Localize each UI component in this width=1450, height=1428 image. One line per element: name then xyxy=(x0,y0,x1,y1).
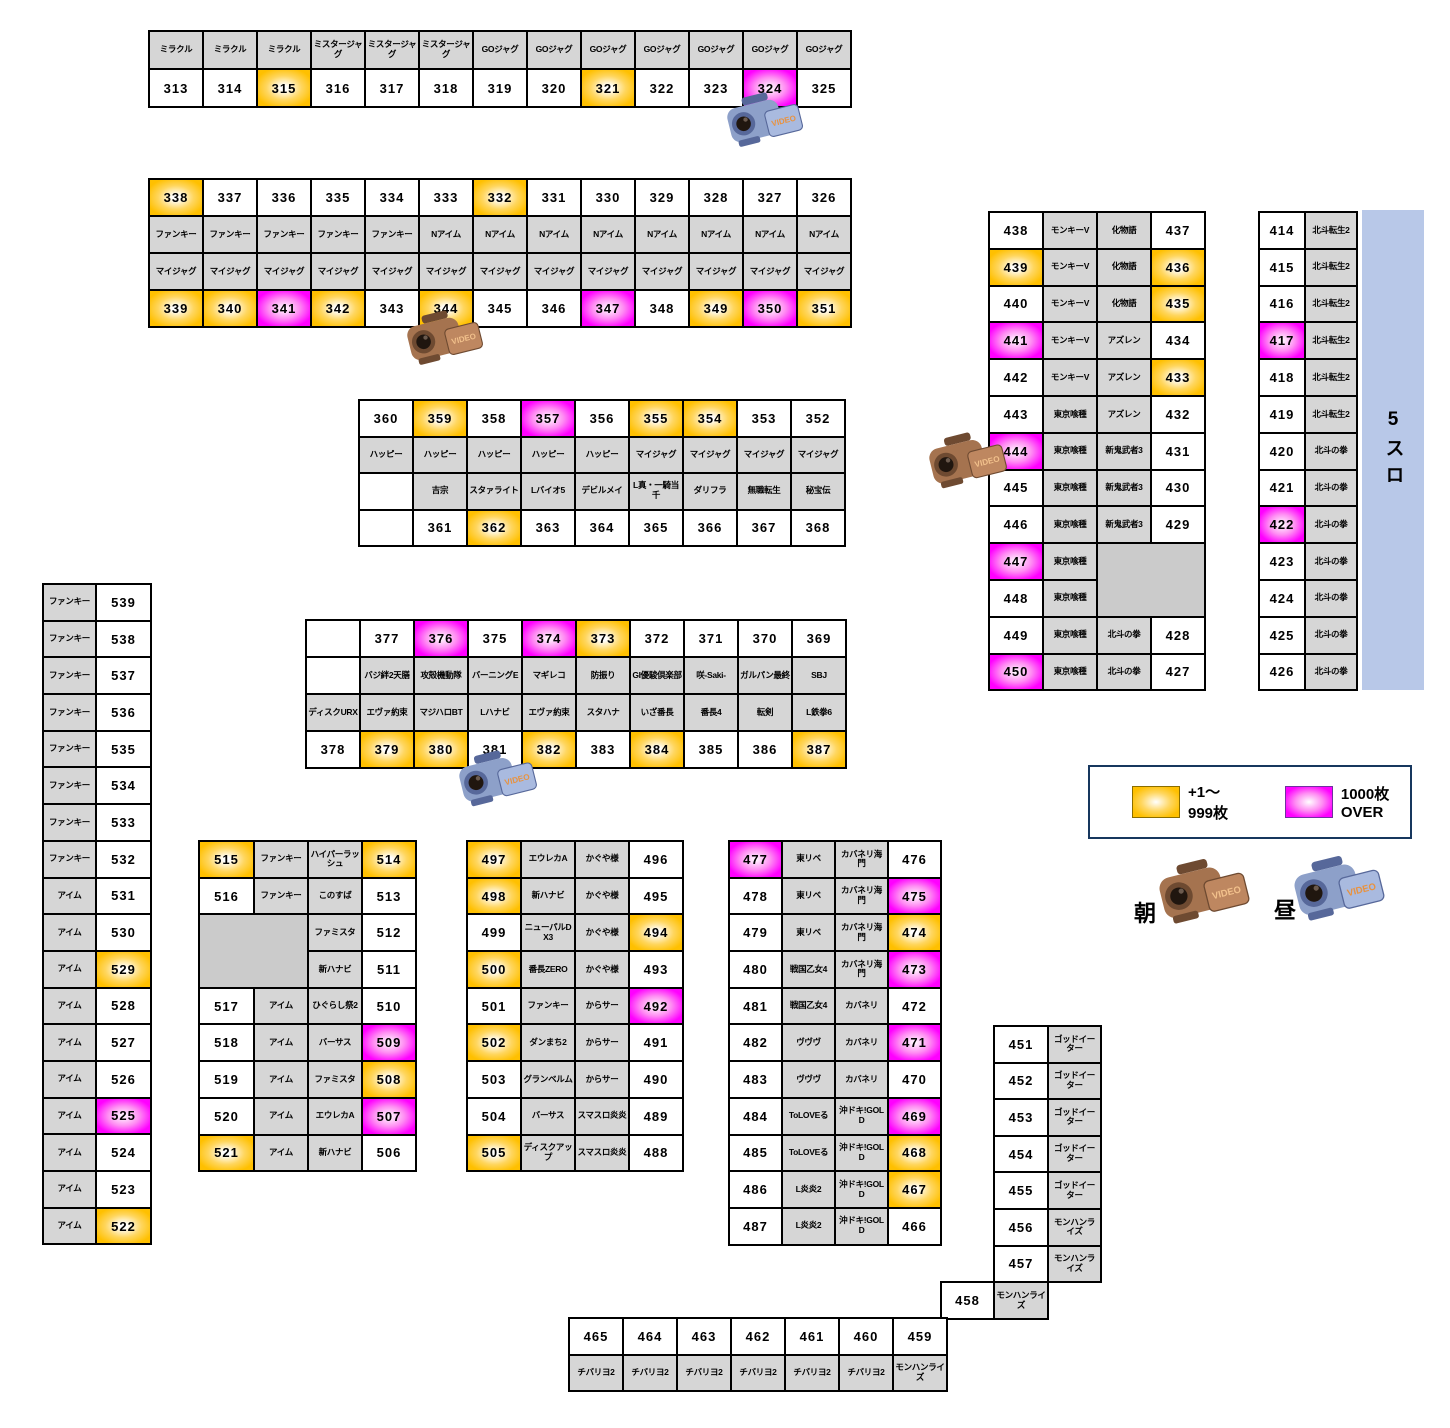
machine-number-cell: 496 xyxy=(629,841,683,878)
machine-name-cell: ファンキー xyxy=(203,216,257,253)
machine-name-cell: カバネリ xyxy=(835,1061,888,1098)
machine-name-cell: マイジャグ xyxy=(683,437,737,474)
machine-number-cell: 353 xyxy=(737,400,791,437)
machine-number-cell-yellow: 373 xyxy=(576,620,630,657)
machine-name-cell: マイジャグ xyxy=(635,253,689,290)
machine-number-cell-yellow: 435 xyxy=(1151,286,1205,323)
machine-name-cell: GOジャグ xyxy=(527,31,581,69)
machine-name-cell: Nアイム xyxy=(689,216,743,253)
machine-name-cell: GOジャグ xyxy=(797,31,851,69)
machine-name-cell: 戦国乙女4 xyxy=(782,988,835,1025)
machine-name-cell: アズレン xyxy=(1097,396,1151,433)
machine-name-cell: モンキーV xyxy=(1043,322,1097,359)
machine-name-cell: このすば xyxy=(308,878,362,915)
machine-number-cell: 356 xyxy=(575,400,629,437)
machine-name-cell: モンキーV xyxy=(1043,359,1097,396)
machine-name-cell: 北斗転生2 xyxy=(1305,212,1357,249)
machine-name-cell: マイジャグ xyxy=(791,437,845,474)
machine-number-cell-yellow: 522 xyxy=(96,1208,151,1245)
machine-number-cell: 480 xyxy=(729,951,782,988)
machine-name-cell: カバネリ海門 xyxy=(835,914,888,951)
machine-number-cell-magenta: 447 xyxy=(989,543,1043,580)
machine-name-cell: カバネリ海門 xyxy=(835,878,888,915)
machine-number-cell: 531 xyxy=(96,878,151,915)
machine-number-cell: 461 xyxy=(785,1318,839,1355)
machine-number-cell: 361 xyxy=(413,510,467,547)
machine-name-cell: ハッピー xyxy=(467,437,521,474)
legend-box: +1～999枚 1000枚OVER xyxy=(1088,765,1412,839)
block-414-426: 414北斗転生2415北斗転生2416北斗転生2417北斗転生2418北斗転生2… xyxy=(1258,211,1358,691)
machine-number-cell-yellow: 340 xyxy=(203,290,257,327)
machine-name-cell: 北斗の拳 xyxy=(1305,470,1357,507)
machine-number-cell: 504 xyxy=(467,1098,521,1135)
machine-name-cell: ToLOVEる xyxy=(782,1098,835,1135)
machine-name-cell: Nアイム xyxy=(419,216,473,253)
machine-number-cell: 429 xyxy=(1151,506,1205,543)
machine-name-cell: L真・一騎当千 xyxy=(629,473,683,510)
machine-name-cell: からサー xyxy=(575,988,629,1025)
machine-name-cell: ファンキー xyxy=(257,216,311,253)
machine-number-cell: 428 xyxy=(1151,617,1205,654)
machine-name-cell: ミスタージャグ xyxy=(419,31,473,69)
machine-number-cell: 317 xyxy=(365,69,419,107)
machine-number-cell-magenta: 417 xyxy=(1259,322,1305,359)
machine-number-cell-yellow: 379 xyxy=(360,731,414,768)
floor-map: 5スロ +1～999枚 1000枚OVER 朝 昼 ミラクルミラクルミラクルミス… xyxy=(0,0,1450,1428)
machine-name-cell: 化物語 xyxy=(1097,286,1151,323)
machine-name-cell: ひぐらし祭2 xyxy=(308,988,362,1025)
machine-number-cell-yellow: 321 xyxy=(581,69,635,107)
machine-number-cell: 426 xyxy=(1259,654,1305,691)
machine-number-cell: 314 xyxy=(203,69,257,107)
machine-name-cell: アイム xyxy=(43,1024,96,1061)
machine-number-cell: 479 xyxy=(729,914,782,951)
machine-number-cell-magenta: 507 xyxy=(362,1098,416,1135)
machine-name-cell: ハッピー xyxy=(413,437,467,474)
machine-number-cell: 470 xyxy=(888,1061,941,1098)
machine-number-cell-magenta: 350 xyxy=(743,290,797,327)
machine-name-cell: ファンキー xyxy=(43,767,96,804)
machine-name-cell: スマスロ炎炎 xyxy=(575,1098,629,1135)
block-326-351: 338337336335334333332331330329328327326フ… xyxy=(148,178,852,328)
machine-number-cell: 532 xyxy=(96,841,151,878)
machine-number-cell: 535 xyxy=(96,731,151,768)
machine-name-cell: かぐや様 xyxy=(575,878,629,915)
machine-name-cell: 北斗の拳 xyxy=(1097,654,1151,691)
machine-number-cell: 518 xyxy=(199,1024,254,1061)
machine-number-cell: 377 xyxy=(360,620,414,657)
machine-name-cell: モンキーV xyxy=(1043,212,1097,249)
machine-number-cell-yellow: 467 xyxy=(888,1171,941,1208)
machine-number-cell: 383 xyxy=(576,731,630,768)
machine-name-cell: カバネリ海門 xyxy=(835,951,888,988)
machine-number-cell: 313 xyxy=(149,69,203,107)
machine-name-cell: ハッピー xyxy=(521,437,575,474)
machine-number-cell: 484 xyxy=(729,1098,782,1135)
machine-name-cell: ミラクル xyxy=(257,31,311,69)
machine-name-cell: アズレン xyxy=(1097,322,1151,359)
machine-name-cell: 沖ドキ!GOLD xyxy=(835,1098,888,1135)
machine-number-cell: 346 xyxy=(527,290,581,327)
machine-number-cell: 476 xyxy=(888,841,941,878)
machine-number-cell-magenta: 441 xyxy=(989,322,1043,359)
machine-number-cell-yellow: 505 xyxy=(467,1135,521,1172)
machine-name-cell: ミスタージャグ xyxy=(311,31,365,69)
machine-number-cell: 520 xyxy=(199,1098,254,1135)
machine-name-cell: エヴァ約束 xyxy=(522,694,576,731)
machine-name-cell: 北斗転生2 xyxy=(1305,396,1357,433)
machine-name-cell: ハッピー xyxy=(359,437,413,474)
machine-number-cell-yellow: 359 xyxy=(413,400,467,437)
machine-name-cell: かぐや様 xyxy=(575,914,629,951)
machine-number-cell: 510 xyxy=(362,988,416,1025)
machine-number-cell: 360 xyxy=(359,400,413,437)
machine-number-cell: 533 xyxy=(96,804,151,841)
machine-number-cell: 501 xyxy=(467,988,521,1025)
machine-name-cell: アイム xyxy=(43,878,96,915)
machine-name-cell: 東リベ xyxy=(782,878,835,915)
machine-name-cell: GOジャグ xyxy=(473,31,527,69)
machine-number-cell-yellow: 338 xyxy=(149,179,203,216)
machine-name-cell: モンハンライズ xyxy=(994,1282,1048,1319)
machine-number-cell: 431 xyxy=(1151,433,1205,470)
machine-number-cell: 367 xyxy=(737,510,791,547)
machine-number-cell: 457 xyxy=(994,1246,1048,1283)
machine-number-cell: 337 xyxy=(203,179,257,216)
machine-name-cell: ヴヴヴ xyxy=(782,1061,835,1098)
machine-name-cell: 沖ドキ!GOLD xyxy=(835,1135,888,1172)
machine-name-cell: 番長4 xyxy=(684,694,738,731)
machine-number-cell-magenta: 471 xyxy=(888,1024,941,1061)
machine-name-cell: アイム xyxy=(254,1135,308,1172)
machine-name-cell: 東京喰種 xyxy=(1043,396,1097,433)
machine-number-cell: 454 xyxy=(994,1136,1048,1173)
machine-name-cell: カバネリ xyxy=(835,1024,888,1061)
machine-name-cell: ミスタージャグ xyxy=(365,31,419,69)
machine-name-cell: アイム xyxy=(43,988,96,1025)
machine-number-cell: 487 xyxy=(729,1208,782,1245)
machine-number-cell: 466 xyxy=(888,1208,941,1245)
machine-name-cell: 東京喰種 xyxy=(1043,617,1097,654)
machine-name-cell: アイム xyxy=(254,1024,308,1061)
machine-name-cell: マギレコ xyxy=(522,657,576,694)
machine-number-cell: 448 xyxy=(989,580,1043,617)
legend-yellow-label: +1～999枚 xyxy=(1188,781,1243,823)
machine-number-cell: 446 xyxy=(989,506,1043,543)
machine-name-cell: 北斗の拳 xyxy=(1097,617,1151,654)
machine-name-cell: Nアイム xyxy=(797,216,851,253)
machine-name-cell: 化物語 xyxy=(1097,249,1151,286)
machine-number-cell: 331 xyxy=(527,179,581,216)
machine-number-cell-magenta: 473 xyxy=(888,951,941,988)
machine-name-cell: マイジャグ xyxy=(257,253,311,290)
machine-number-cell: 453 xyxy=(994,1099,1048,1136)
machine-number-cell: 527 xyxy=(96,1024,151,1061)
block-451-457: 451ゴッドイーター452ゴッドイーター453ゴッドイーター454ゴッドイーター… xyxy=(993,1025,1102,1283)
machine-name-cell: チバリヨ2 xyxy=(623,1355,677,1392)
machine-number-cell: 506 xyxy=(362,1135,416,1172)
machine-name-cell: ミラクル xyxy=(203,31,257,69)
machine-name-cell: L炎炎2 xyxy=(782,1208,835,1245)
machine-number-cell: 335 xyxy=(311,179,365,216)
machine-name-cell: モンキーV xyxy=(1043,249,1097,286)
machine-name-cell: 咲-Saki- xyxy=(684,657,738,694)
machine-name-cell: カバネリ海門 xyxy=(835,841,888,878)
machine-name-cell: ファミスタ xyxy=(308,1061,362,1098)
machine-name-cell: チバリヨ2 xyxy=(731,1355,785,1392)
machine-name-cell: 新鬼武者3 xyxy=(1097,433,1151,470)
machine-number-cell-yellow: 494 xyxy=(629,914,683,951)
machine-number-cell-yellow: 497 xyxy=(467,841,521,878)
machine-number-cell-magenta: 347 xyxy=(581,290,635,327)
blocked-area xyxy=(199,914,308,987)
machine-name-cell: 新鬼武者3 xyxy=(1097,506,1151,543)
machine-name-cell: ハッピー xyxy=(575,437,629,474)
machine-number-cell: 512 xyxy=(362,914,416,951)
machine-name-cell: ガルパン最終 xyxy=(738,657,792,694)
machine-number-cell-yellow: 362 xyxy=(467,510,521,547)
machine-number-cell: 333 xyxy=(419,179,473,216)
machine-name-cell: モンキーV xyxy=(1043,286,1097,323)
machine-name-cell: マイジャグ xyxy=(365,253,419,290)
machine-name-cell: GI優駿倶楽部 xyxy=(630,657,684,694)
machine-name-cell: グランベルム xyxy=(521,1061,575,1098)
machine-name-cell: ゴッドイーター xyxy=(1048,1063,1101,1100)
machine-name-cell: マイジャグ xyxy=(203,253,257,290)
machine-number-cell-magenta: 376 xyxy=(414,620,468,657)
machine-name-cell: アイム xyxy=(254,1098,308,1135)
machine-number-cell: 416 xyxy=(1259,286,1305,323)
machine-name-cell: 新ハナビ xyxy=(308,1135,362,1172)
machine-number-cell: 524 xyxy=(96,1134,151,1171)
machine-name-cell: 東京喰種 xyxy=(1043,580,1097,617)
machine-name-cell: 攻殻機動隊 xyxy=(414,657,468,694)
machine-number-cell: 318 xyxy=(419,69,473,107)
machine-number-cell: 523 xyxy=(96,1171,151,1208)
block-506-521: 515ファンキーハイパーラッシュ514516ファンキーこのすば513ファミスタ5… xyxy=(198,840,417,1172)
machine-name-cell: 東京喰種 xyxy=(1043,470,1097,507)
machine-number-cell: 455 xyxy=(994,1172,1048,1209)
machine-name-cell: 北斗の拳 xyxy=(1305,654,1357,691)
machine-name-cell: かぐや様 xyxy=(575,951,629,988)
machine-name-cell: ミラクル xyxy=(149,31,203,69)
machine-name-cell: GOジャグ xyxy=(689,31,743,69)
machine-number-cell: 483 xyxy=(729,1061,782,1098)
machine-number-cell-magenta: 475 xyxy=(888,878,941,915)
machine-name-cell: スタハナ xyxy=(576,694,630,731)
machine-name-cell: ファンキー xyxy=(254,841,308,878)
machine-name-cell: マイジャグ xyxy=(473,253,527,290)
machine-name-cell: 北斗転生2 xyxy=(1305,322,1357,359)
machine-number-cell: 486 xyxy=(729,1171,782,1208)
machine-number-cell: 534 xyxy=(96,767,151,804)
machine-number-cell-yellow: 502 xyxy=(467,1024,521,1061)
block-459-465: 465464463462461460459チバリヨ2チバリヨ2チバリヨ2チバリヨ… xyxy=(568,1317,948,1392)
machine-number-cell-yellow: 384 xyxy=(630,731,684,768)
machine-name-cell: ヴヴヴ xyxy=(782,1024,835,1061)
machine-number-cell: 371 xyxy=(684,620,738,657)
machine-number-cell-magenta: 374 xyxy=(522,620,576,657)
machine-number-cell-magenta: 450 xyxy=(989,654,1043,691)
machine-name-cell: GOジャグ xyxy=(743,31,797,69)
machine-number-cell-magenta: 357 xyxy=(521,400,575,437)
machine-name-cell: エウレカA xyxy=(308,1098,362,1135)
empty-space xyxy=(359,473,413,510)
machine-name-cell: アイム xyxy=(43,1171,96,1208)
machine-name-cell: Nアイム xyxy=(527,216,581,253)
machine-number-cell: 414 xyxy=(1259,212,1305,249)
machine-name-cell: からサー xyxy=(575,1061,629,1098)
machine-number-cell: 369 xyxy=(792,620,846,657)
machine-name-cell: マイジャグ xyxy=(743,253,797,290)
machine-number-cell: 326 xyxy=(797,179,851,216)
machine-number-cell-yellow: 436 xyxy=(1151,249,1205,286)
machine-name-cell: 東京喰種 xyxy=(1043,433,1097,470)
machine-number-cell-yellow: 498 xyxy=(467,878,521,915)
machine-number-cell: 366 xyxy=(683,510,737,547)
machine-name-cell: アイム xyxy=(43,1208,96,1245)
machine-name-cell: ファンキー xyxy=(254,878,308,915)
machine-number-cell: 319 xyxy=(473,69,527,107)
machine-name-cell: Nアイム xyxy=(743,216,797,253)
video-camera-icon-brown: VIDEO xyxy=(1158,856,1253,940)
video-camera-icon-blue: VIDEO xyxy=(458,748,540,822)
machine-name-cell: ToLOVEる xyxy=(782,1135,835,1172)
machine-name-cell: バーサス xyxy=(521,1098,575,1135)
empty-space xyxy=(306,657,360,694)
machine-number-cell: 538 xyxy=(96,621,151,658)
machine-number-cell: 430 xyxy=(1151,470,1205,507)
machine-number-cell: 415 xyxy=(1259,249,1305,286)
machine-number-cell-yellow: 508 xyxy=(362,1061,416,1098)
machine-number-cell: 420 xyxy=(1259,433,1305,470)
machine-name-cell: モンハンライズ xyxy=(1048,1246,1101,1283)
machine-name-cell: ニューパルDX3 xyxy=(521,914,575,951)
video-camera-icon-blue: VIDEO xyxy=(1293,853,1388,937)
machine-name-cell: ファンキー xyxy=(43,841,96,878)
machine-name-cell: 北斗の拳 xyxy=(1305,580,1357,617)
machine-name-cell: ダンまち2 xyxy=(521,1024,575,1061)
machine-name-cell: バーニングE xyxy=(468,657,522,694)
machine-name-cell: 沖ドキ!GOLD xyxy=(835,1171,888,1208)
machine-number-cell: 511 xyxy=(362,951,416,988)
machine-number-cell: 503 xyxy=(467,1061,521,1098)
machine-number-cell: 463 xyxy=(677,1318,731,1355)
machine-name-cell: ファンキー xyxy=(43,621,96,658)
machine-number-cell: 465 xyxy=(569,1318,623,1355)
machine-name-cell: モンハンライズ xyxy=(1048,1209,1101,1246)
machine-number-cell-yellow: 500 xyxy=(467,951,521,988)
machine-name-cell: 戦国乙女4 xyxy=(782,951,835,988)
machine-number-cell: 462 xyxy=(731,1318,785,1355)
machine-name-cell: 沖ドキ!GOLD xyxy=(835,1208,888,1245)
machine-number-cell: 327 xyxy=(743,179,797,216)
machine-number-cell: 493 xyxy=(629,951,683,988)
machine-name-cell: SBJ xyxy=(792,657,846,694)
machine-number-cell: 437 xyxy=(1151,212,1205,249)
machine-name-cell: ディスクURX xyxy=(306,694,360,731)
machine-name-cell: マイジャグ xyxy=(311,253,365,290)
machine-name-cell: 北斗の拳 xyxy=(1305,506,1357,543)
block-466-487: 477東リベカバネリ海門476478東リベカバネリ海門475479東リベカバネリ… xyxy=(728,840,942,1246)
machine-number-cell: 432 xyxy=(1151,396,1205,433)
machine-name-cell: アイム xyxy=(43,951,96,988)
machine-name-cell: アイム xyxy=(43,1061,96,1098)
machine-name-cell: 無職転生 xyxy=(737,473,791,510)
morning-camera-label: 朝 xyxy=(1134,896,1156,928)
machine-number-cell-yellow: 315 xyxy=(257,69,311,107)
machine-name-cell: チバリヨ2 xyxy=(677,1355,731,1392)
legend-magenta-swatch xyxy=(1285,786,1333,818)
machine-name-cell: スタァライト xyxy=(467,473,521,510)
machine-number-cell-magenta: 477 xyxy=(729,841,782,878)
machine-number-cell-yellow: 529 xyxy=(96,951,151,988)
block-352-368: 360359358357356355354353352ハッピーハッピーハッピーハ… xyxy=(358,399,846,547)
machine-number-cell-yellow: 351 xyxy=(797,290,851,327)
machine-number-cell-yellow: 332 xyxy=(473,179,527,216)
machine-name-cell: ディスクアップ xyxy=(521,1135,575,1172)
machine-number-cell-yellow: 468 xyxy=(888,1135,941,1172)
machine-name-cell: デビルメイ xyxy=(575,473,629,510)
machine-number-cell: 458 xyxy=(941,1282,994,1319)
machine-number-cell: 334 xyxy=(365,179,419,216)
machine-name-cell: アイム xyxy=(43,1134,96,1171)
machine-name-cell: アズレン xyxy=(1097,359,1151,396)
machine-name-cell: アイム xyxy=(43,914,96,951)
machine-name-cell: マイジャグ xyxy=(581,253,635,290)
machine-name-cell: 秘宝伝 xyxy=(791,473,845,510)
machine-number-cell: 358 xyxy=(467,400,521,437)
machine-number-cell: 322 xyxy=(635,69,689,107)
machine-number-cell: 363 xyxy=(521,510,575,547)
machine-number-cell-yellow: 339 xyxy=(149,290,203,327)
machine-number-cell: 516 xyxy=(199,878,254,915)
blocked-area xyxy=(1097,543,1205,617)
machine-number-cell: 536 xyxy=(96,694,151,731)
machine-number-cell: 491 xyxy=(629,1024,683,1061)
machine-name-cell: ファンキー xyxy=(43,584,96,621)
machine-number-cell: 418 xyxy=(1259,359,1305,396)
machine-number-cell: 348 xyxy=(635,290,689,327)
machine-name-cell: 北斗転生2 xyxy=(1305,359,1357,396)
machine-number-cell-yellow: 354 xyxy=(683,400,737,437)
machine-number-cell: 316 xyxy=(311,69,365,107)
machine-number-cell: 489 xyxy=(629,1098,683,1135)
machine-name-cell: 東京喰種 xyxy=(1043,506,1097,543)
machine-number-cell: 375 xyxy=(468,620,522,657)
machine-number-cell-yellow: 433 xyxy=(1151,359,1205,396)
machine-number-cell: 472 xyxy=(888,988,941,1025)
machine-name-cell: 番長ZERO xyxy=(521,951,575,988)
video-camera-icon-brown: VIDEO xyxy=(928,430,1010,504)
machine-name-cell: 化物語 xyxy=(1097,212,1151,249)
machine-number-cell-yellow: 349 xyxy=(689,290,743,327)
five-slot-zone-band: 5スロ xyxy=(1362,210,1424,690)
machine-name-cell: 北斗の拳 xyxy=(1305,617,1357,654)
machine-number-cell: 434 xyxy=(1151,322,1205,359)
machine-name-cell: バーサス xyxy=(308,1024,362,1061)
machine-number-cell: 328 xyxy=(689,179,743,216)
machine-number-cell: 336 xyxy=(257,179,311,216)
machine-name-cell: ファンキー xyxy=(311,216,365,253)
machine-number-cell: 451 xyxy=(994,1026,1048,1063)
legend-magenta-label: 1000枚OVER xyxy=(1341,783,1410,821)
machine-name-cell: L鉄拳6 xyxy=(792,694,846,731)
machine-name-cell: 北斗転生2 xyxy=(1305,286,1357,323)
machine-name-cell: Nアイム xyxy=(473,216,527,253)
machine-number-cell: 537 xyxy=(96,657,151,694)
machine-number-cell: 364 xyxy=(575,510,629,547)
